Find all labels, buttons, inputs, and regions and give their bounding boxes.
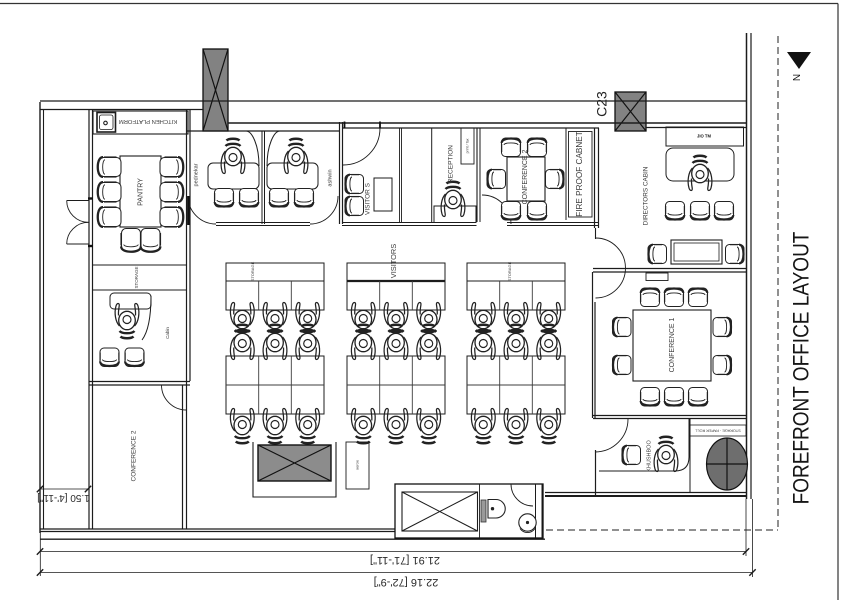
svg-text:CONFERENCE 1: CONFERENCE 1: [669, 317, 676, 372]
svg-text:CONFERENCE 2: CONFERENCE 2: [522, 149, 529, 204]
svg-text:xerox: xerox: [355, 460, 360, 470]
svg-text:pednekar: pednekar: [193, 163, 199, 186]
svg-text:RECEPTION: RECEPTION: [448, 145, 455, 183]
svg-text:22.16 [72'-9"]: 22.16 [72'-9"]: [374, 576, 439, 588]
svg-text:FOREFRONT OFFICE LAYOUT: FOREFRONT OFFICE LAYOUT: [789, 231, 814, 504]
svg-text:PANTRY: PANTRY: [137, 178, 144, 206]
svg-text:JIO TM: JIO TM: [697, 134, 711, 139]
svg-text:1.50 [4'-11"]: 1.50 [4'-11"]: [37, 492, 90, 503]
svg-text:KHUSHBOO: KHUSHBOO: [646, 440, 652, 472]
svg-text:N: N: [792, 74, 803, 81]
svg-text:21.91 [71'-11"]: 21.91 [71'-11"]: [370, 554, 440, 566]
svg-text:C23: C23: [594, 91, 610, 117]
svg-text:KITCHEN PLATFORM: KITCHEN PLATFORM: [119, 118, 177, 124]
svg-text:STORAGE: STORAGE: [250, 261, 255, 281]
svg-text:STORAGE - PAPER ROLL: STORAGE - PAPER ROLL: [695, 429, 740, 433]
svg-text:CONFERENCE 2: CONFERENCE 2: [131, 430, 138, 481]
svg-text:FIRE PROOF CABNET: FIRE PROOF CABNET: [575, 131, 584, 217]
svg-text:STORAGE: STORAGE: [134, 267, 139, 289]
svg-text:print / fax: print / fax: [465, 138, 469, 153]
svg-text:Cabin: Cabin: [165, 327, 170, 339]
svg-text:DIRECTORS CABIN: DIRECTORS CABIN: [643, 166, 650, 225]
svg-text:ashwin: ashwin: [327, 169, 333, 186]
svg-text:VISITOR S: VISITOR S: [365, 182, 372, 215]
svg-text:STORAGE: STORAGE: [507, 261, 512, 281]
svg-text:VISITORS: VISITORS: [389, 244, 398, 278]
